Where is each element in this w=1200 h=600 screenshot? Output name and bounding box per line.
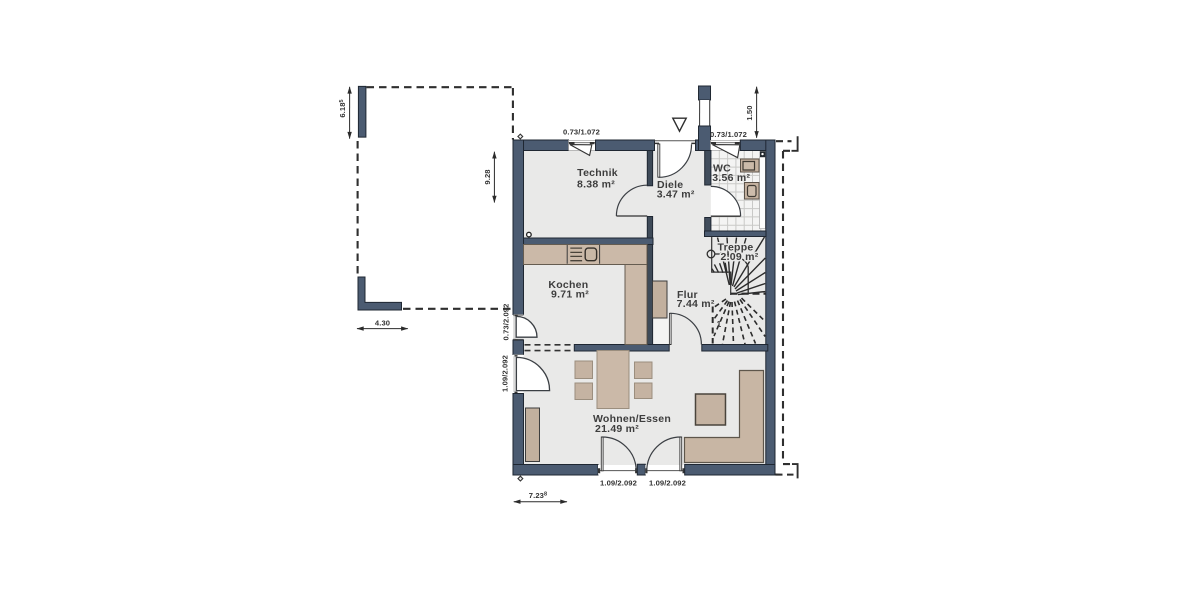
svg-text:1.50: 1.50: [745, 105, 754, 120]
svg-text:1.09/2.092: 1.09/2.092: [500, 355, 509, 392]
svg-text:1.09/2.092: 1.09/2.092: [600, 479, 637, 488]
svg-text:Technik: Technik: [577, 167, 618, 179]
svg-text:0.73/1.072: 0.73/1.072: [563, 127, 600, 136]
svg-text:3.56 m²: 3.56 m²: [712, 172, 750, 184]
svg-text:0.73/2.092: 0.73/2.092: [501, 304, 510, 341]
svg-text:0.73/1.072: 0.73/1.072: [710, 130, 747, 139]
svg-text:2.09 m²: 2.09 m²: [721, 251, 759, 263]
svg-text:9.71 m²: 9.71 m²: [551, 289, 589, 301]
svg-text:1: 1: [716, 319, 721, 329]
svg-text:7.44 m²: 7.44 m²: [677, 298, 715, 310]
svg-text:1.09/2.092: 1.09/2.092: [649, 479, 686, 488]
svg-text:9.28: 9.28: [483, 169, 492, 184]
svg-text:21.49 m²: 21.49 m²: [595, 423, 639, 435]
svg-text:4.30: 4.30: [375, 318, 390, 327]
svg-text:3.47 m²: 3.47 m²: [657, 189, 695, 201]
svg-text:8.38 m²: 8.38 m²: [577, 178, 615, 190]
